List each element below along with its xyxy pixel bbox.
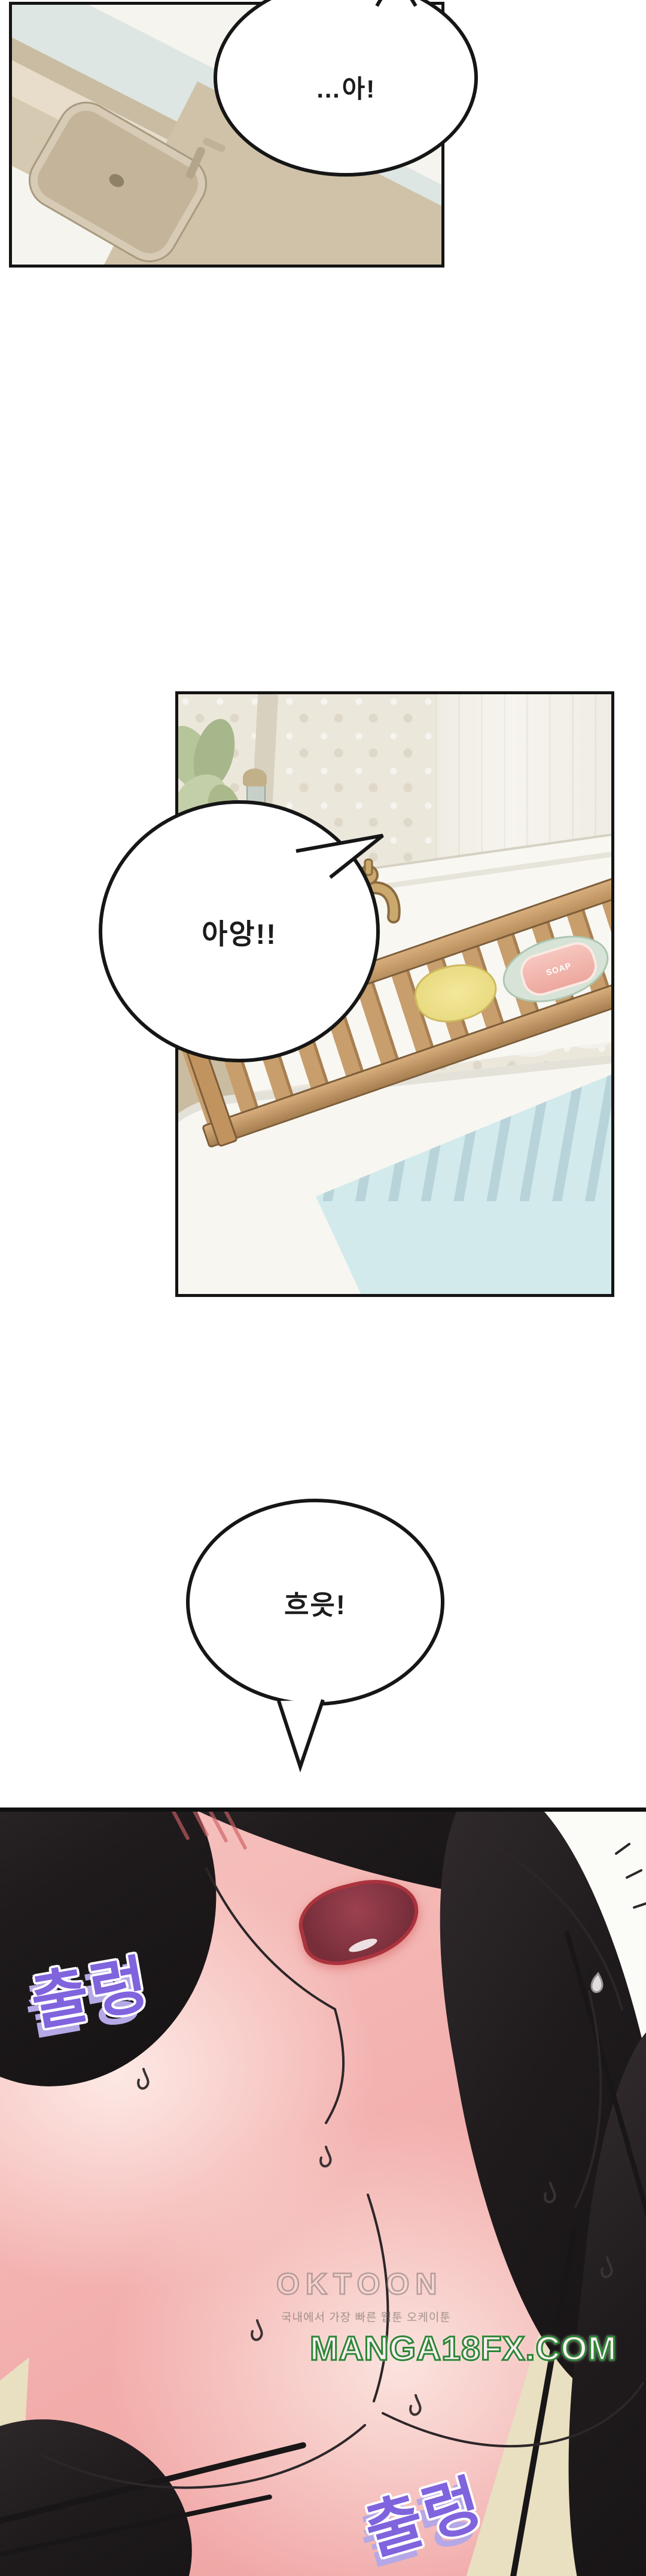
bottle-stopper — [243, 768, 267, 786]
oktoon-watermark: OKTOON — [276, 2267, 443, 2301]
bubble-tail-3 — [279, 1700, 323, 1767]
speech-text-1: …아! — [316, 51, 376, 105]
panel-closeup-artwork: 출렁 출렁 OKTOON 국내에서 가장 빠른 웹툰 오케이툰 MANGA18F… — [0, 1808, 646, 2576]
gloss-drop — [592, 1973, 602, 1992]
speech-bubble-2: 아앙!! — [99, 800, 380, 1062]
oktoon-tagline: 국내에서 가장 빠른 웹툰 오케이툰 — [281, 2308, 451, 2325]
speech-text-3: 흐읏! — [284, 1583, 346, 1622]
speech-bubble-3: 흐읏! — [186, 1499, 444, 1706]
speech-text-2: 아앙!! — [202, 911, 277, 952]
lip-highlight — [348, 1936, 379, 1955]
webtoon-page: SOAP — [0, 0, 646, 2576]
site-watermark: MANGA18FX.COM — [310, 2329, 617, 2368]
sink-drain — [107, 171, 127, 189]
